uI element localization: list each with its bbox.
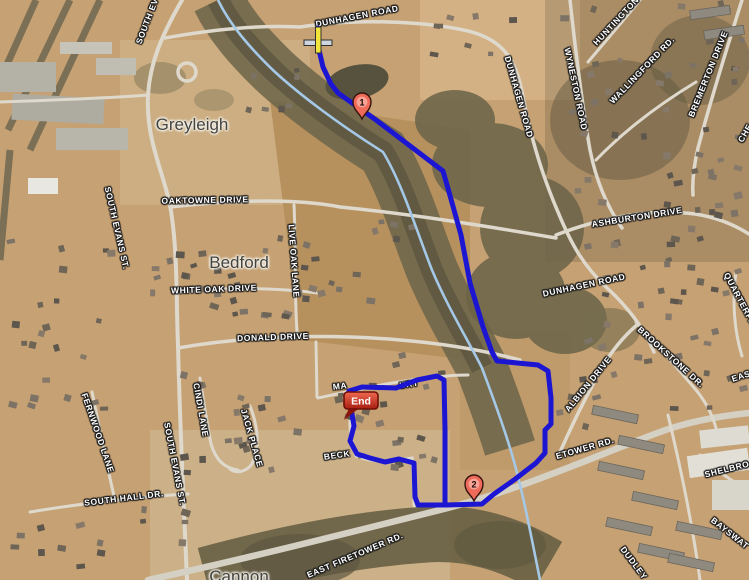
waypoint-pin-2[interactable]: 2 [465,475,483,501]
route-start-marker[interactable] [304,27,332,53]
map-canvas[interactable]: DUNHAGEN ROADSOUTH EVHUNTINGTONWYNESTON … [0,0,749,580]
waypoint-1-number: 1 [359,97,364,107]
waypoint-2-number: 2 [471,479,476,489]
end-marker-text: End [351,396,371,408]
route-overlay: 1 2 End [0,0,749,580]
end-marker[interactable]: End [344,392,378,420]
